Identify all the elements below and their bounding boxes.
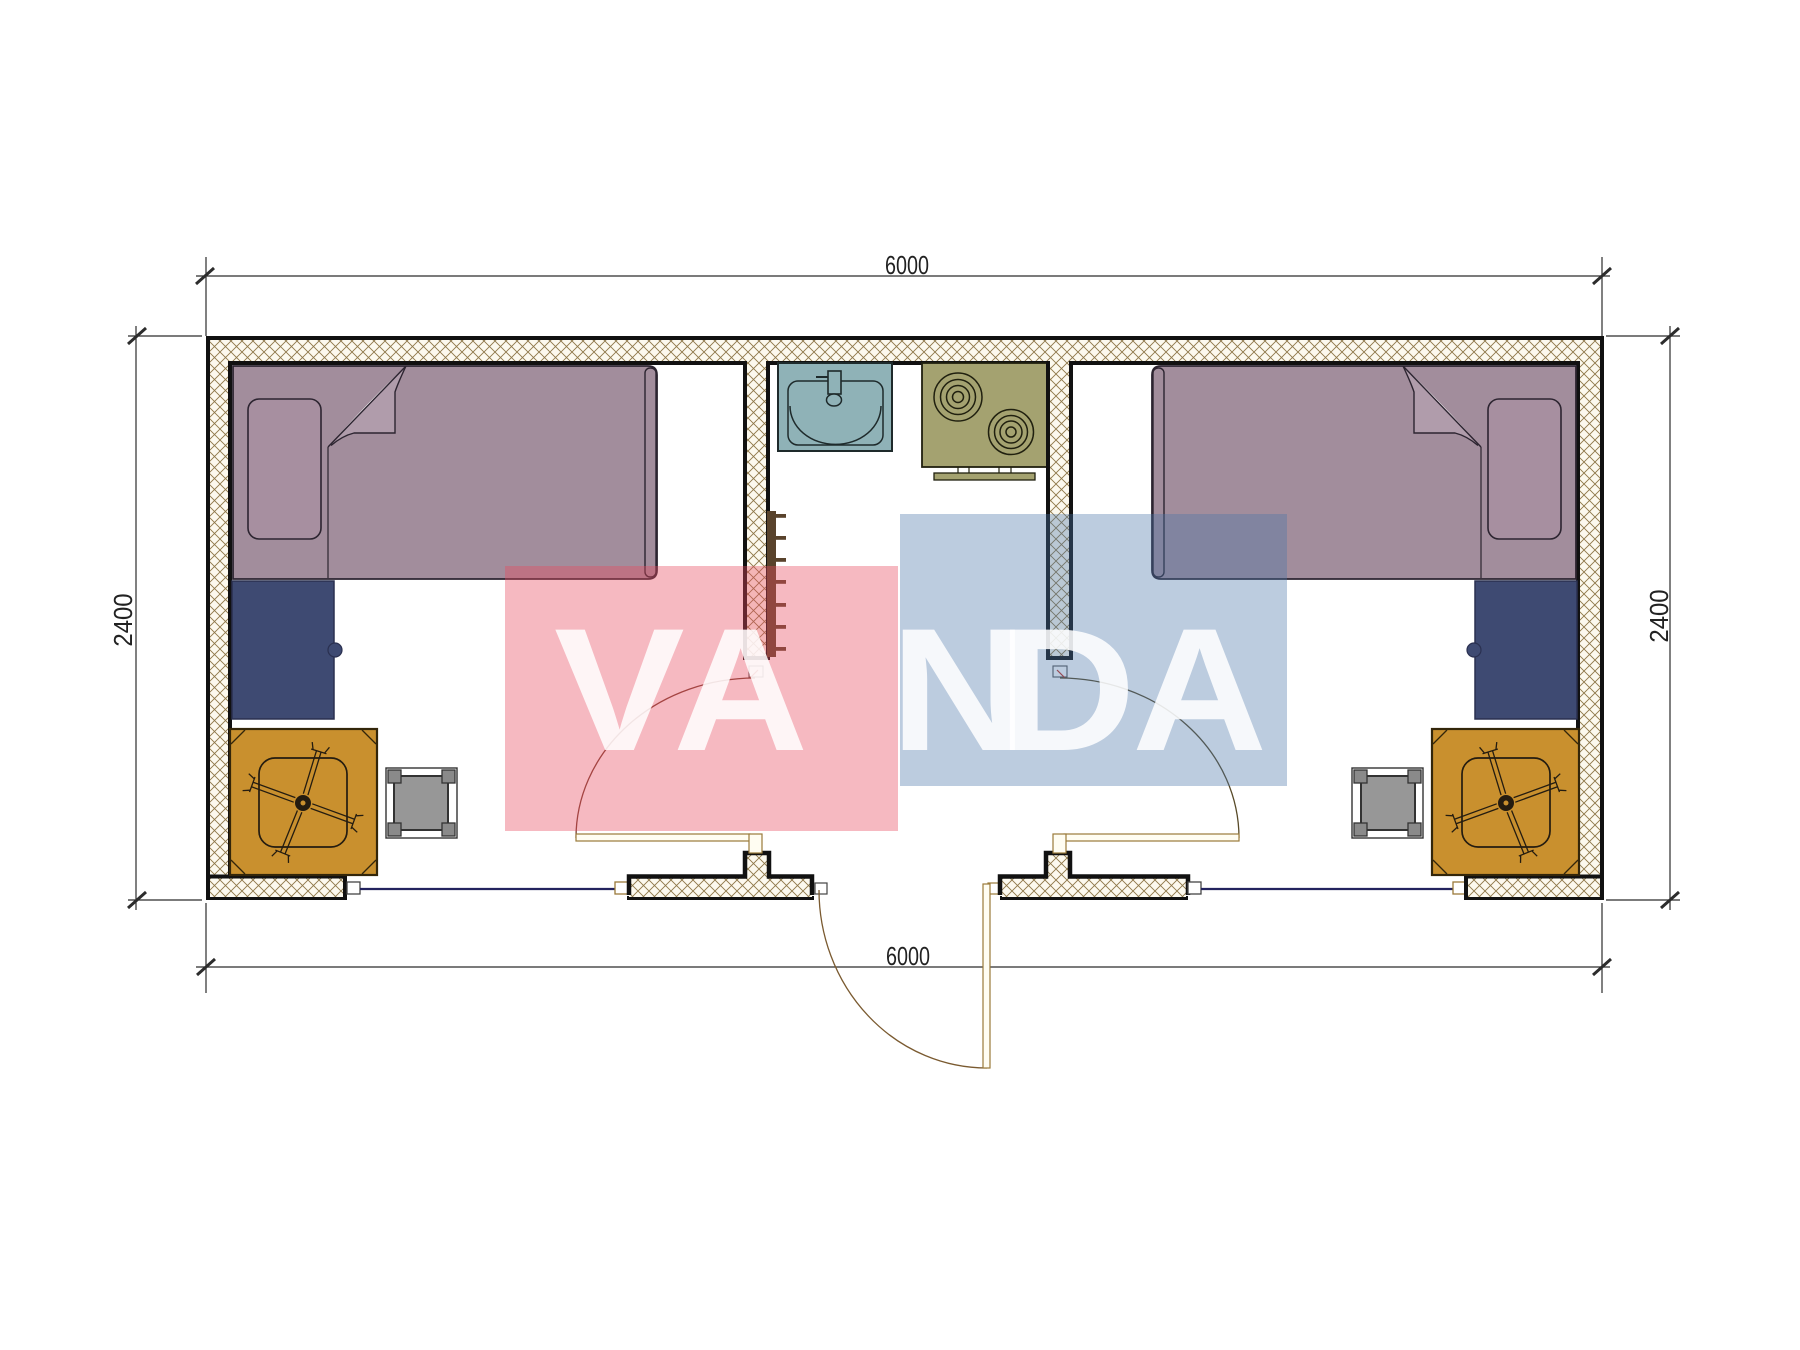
svg-text:6000: 6000: [886, 941, 930, 970]
svg-text:A: A: [673, 593, 808, 788]
svg-text:D: D: [997, 591, 1136, 787]
svg-text:A: A: [1132, 593, 1267, 788]
svg-text:V: V: [554, 593, 685, 788]
svg-text:6000: 6000: [885, 250, 929, 279]
svg-text:2400: 2400: [1645, 589, 1674, 642]
svg-text:2400: 2400: [109, 593, 138, 646]
